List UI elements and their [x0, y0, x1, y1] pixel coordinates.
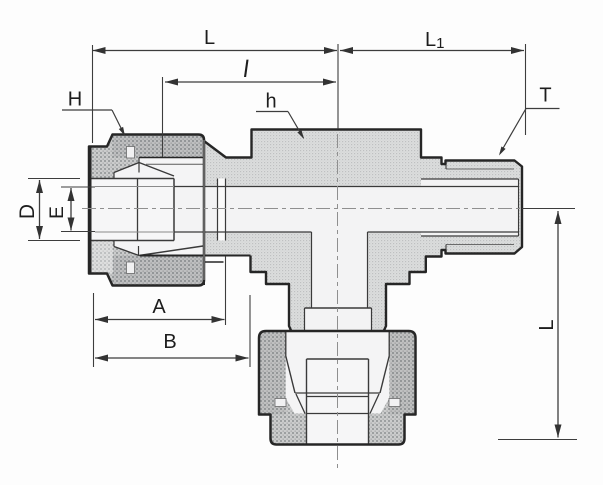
svg-text:h: h: [265, 91, 276, 113]
svg-text:H: H: [68, 89, 82, 111]
svg-text:A: A: [152, 296, 166, 318]
svg-text:B: B: [163, 331, 176, 353]
svg-text:L: L: [204, 27, 215, 49]
svg-text:E: E: [47, 206, 68, 219]
svg-text:L: L: [536, 319, 558, 330]
svg-text:T: T: [539, 85, 551, 107]
svg-text:D: D: [16, 204, 39, 219]
